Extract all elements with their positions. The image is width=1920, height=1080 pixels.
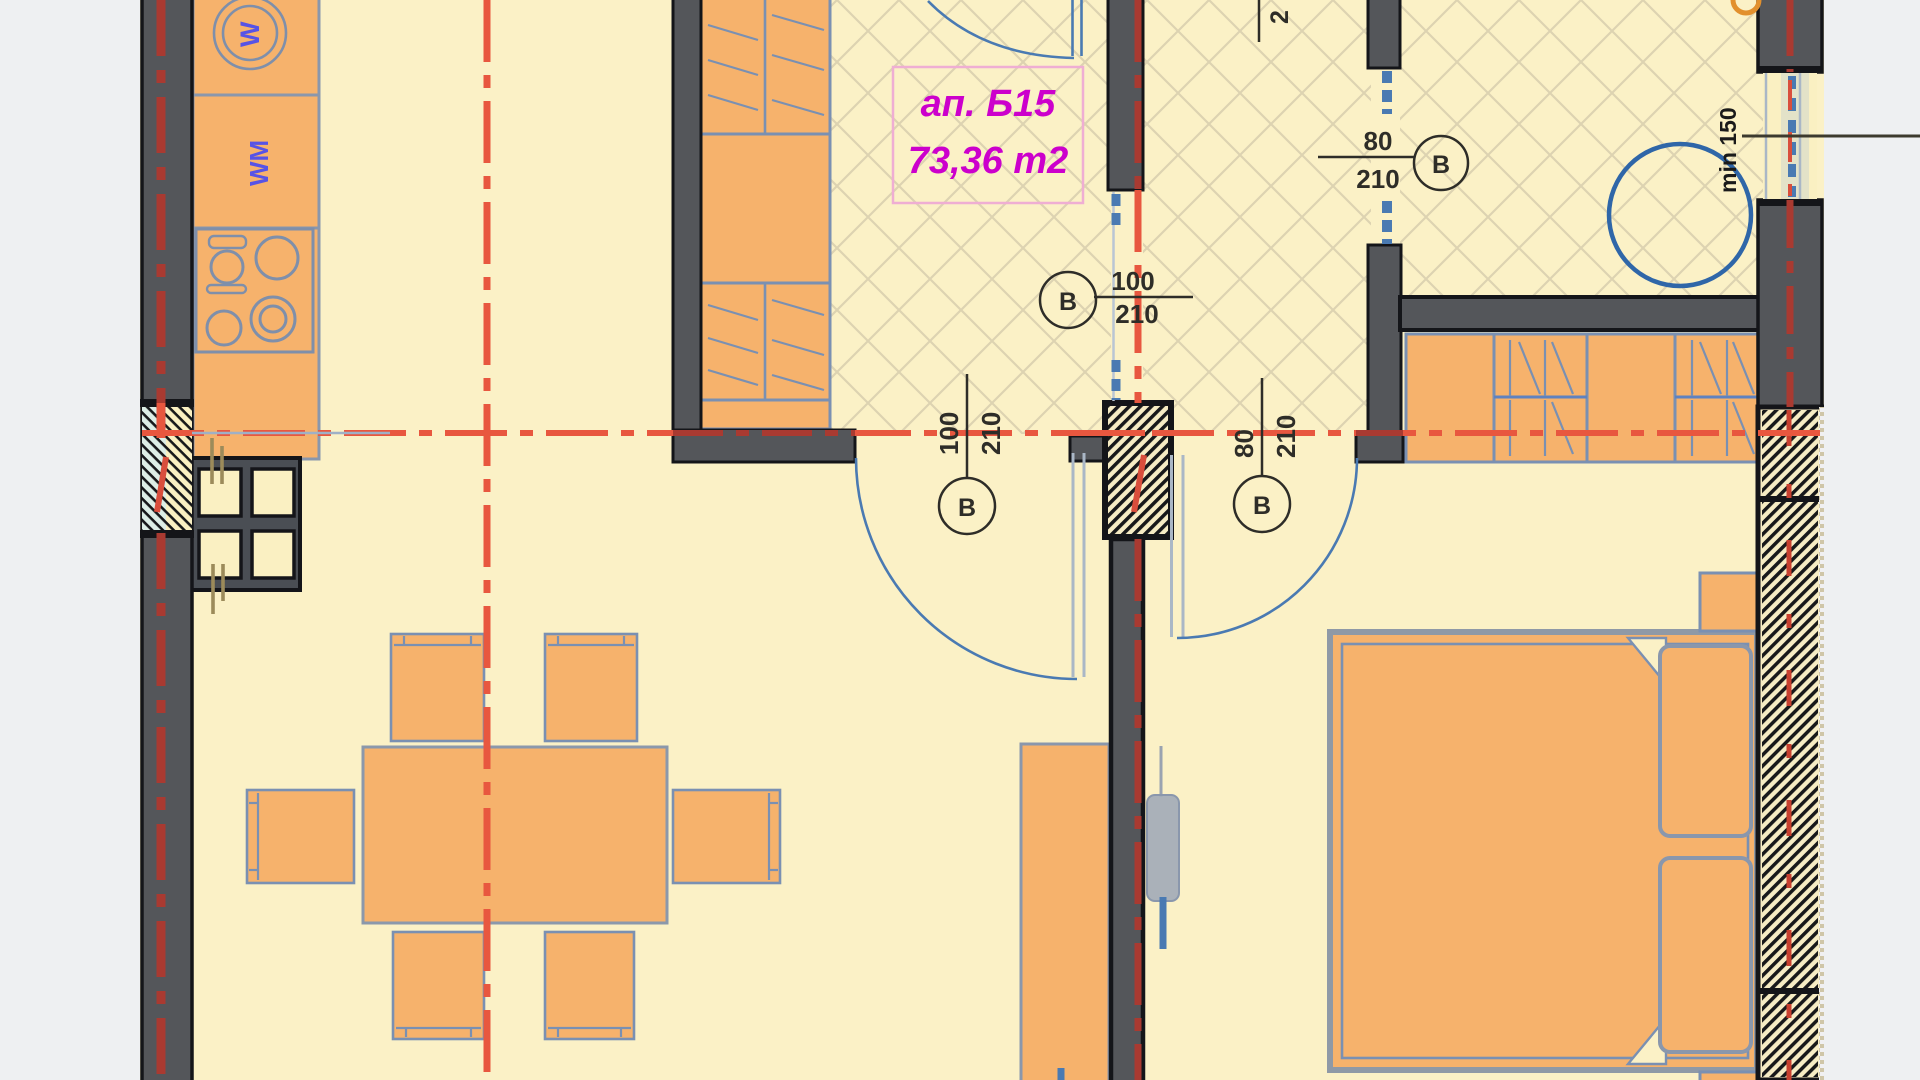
svg-text:В: В xyxy=(1432,151,1450,179)
svg-text:min 150: min 150 xyxy=(1715,107,1741,193)
svg-text:В: В xyxy=(958,494,976,522)
svg-text:ап. Б15: ап. Б15 xyxy=(921,83,1056,125)
svg-text:100: 100 xyxy=(1111,266,1154,296)
svg-text:100: 100 xyxy=(934,412,964,455)
svg-text:80: 80 xyxy=(1364,126,1393,156)
svg-text:210: 210 xyxy=(976,412,1006,455)
svg-text:В: В xyxy=(1059,288,1077,316)
svg-text:210: 210 xyxy=(1356,164,1399,194)
svg-text:210: 210 xyxy=(1271,415,1301,458)
svg-text:80: 80 xyxy=(1229,429,1259,458)
svg-text:В: В xyxy=(1253,492,1271,520)
svg-text:2: 2 xyxy=(1266,10,1294,24)
svg-text:W: W xyxy=(235,21,265,47)
svg-text:WM: WM xyxy=(244,140,274,186)
svg-text:210: 210 xyxy=(1115,299,1158,329)
svg-text:73,36 m2: 73,36 m2 xyxy=(908,140,1069,182)
